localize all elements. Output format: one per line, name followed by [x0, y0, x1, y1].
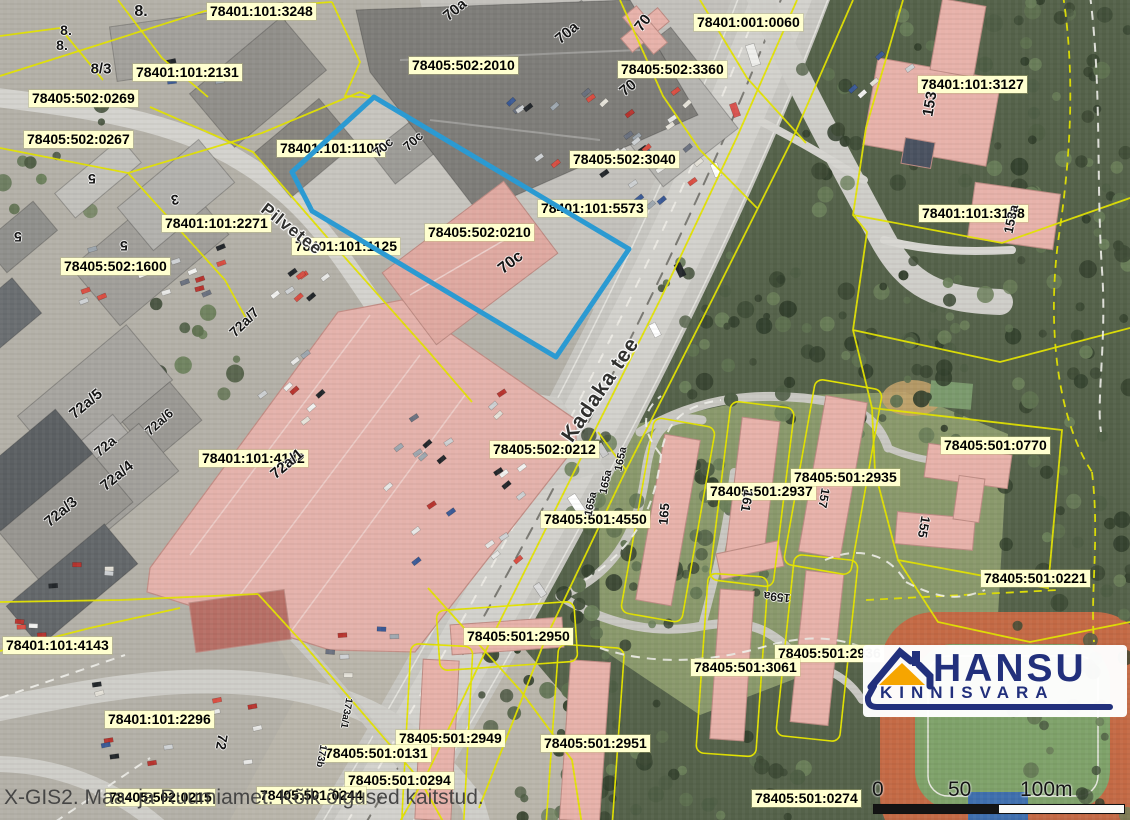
parcel-label: 78401:101:3127	[918, 76, 1027, 93]
parcel-label: 78405:501:2951	[541, 735, 650, 752]
building-number-label: 3	[170, 191, 180, 208]
parcel-label: 78401:101:2296	[105, 711, 214, 728]
logo-subtitle: KINNISVARA	[880, 683, 1055, 703]
scale-bar-graphic	[873, 804, 1125, 814]
attribution-text: X-GIS2. Maa- ja Ruumiamet. Kõik õigused …	[4, 786, 484, 810]
building-number-label: 70a	[552, 18, 582, 47]
scale-tick-0: 0	[872, 778, 884, 802]
parcel-label: 78405:501:3061	[691, 659, 800, 676]
building-number-label: 72a/6	[142, 406, 176, 439]
building-number-label: 72	[213, 733, 231, 751]
building-number-label: 70	[631, 11, 655, 35]
parcel-label: 78401:001:0060	[694, 14, 803, 31]
scale-bar: 0 50 100m	[860, 778, 1128, 818]
building-number-label: 159a	[763, 589, 791, 606]
building-number-label: 72a/7	[226, 304, 262, 340]
parcel-label: 78401:101:4143	[3, 637, 112, 654]
building-number-label: 8.	[56, 37, 68, 53]
scale-bar-segment-dark	[874, 805, 999, 813]
parcel-label: 78405:502:1600	[61, 258, 170, 275]
building-number-label: 8.	[134, 3, 147, 21]
street-name-label: Kadaka tee	[557, 333, 645, 447]
parcel-label: 78405:501:0274	[752, 790, 861, 807]
building-number-label: 5	[14, 229, 22, 245]
parcel-label: 78401:101:2271	[162, 215, 271, 232]
parcel-label: 78405:502:0267	[24, 131, 133, 148]
building-number-label: 173b	[314, 744, 329, 768]
parcel-label: 78405:502:3360	[618, 61, 727, 78]
parcel-label: 78405:501:0131	[322, 745, 431, 762]
building-number-label: 72a	[91, 432, 119, 459]
parcel-label: 78401:101:2131	[133, 64, 242, 81]
building-number-label: 165a	[613, 446, 630, 472]
parcel-label: 78405:502:0212	[490, 441, 599, 458]
parcel-label: 78405:501:4550	[541, 511, 650, 528]
building-number-label: 70a	[440, 0, 470, 25]
building-number-label: 5	[120, 238, 128, 254]
parcel-label: 78405:501:0221	[981, 570, 1090, 587]
building-number-label: 161	[738, 489, 757, 513]
scale-tick-50: 50	[948, 778, 971, 802]
scale-tick-100: 100m	[1020, 778, 1073, 802]
building-number-label: 8/3	[91, 61, 112, 78]
parcel-label: 78405:501:2935	[791, 469, 900, 486]
building-number-label: 72a/3	[41, 493, 81, 530]
building-number-label: 70	[616, 76, 640, 100]
parcel-label: 78405:502:3040	[570, 151, 679, 168]
building-number-label: 165a	[598, 469, 615, 495]
building-number-label: 153	[919, 90, 940, 118]
parcel-label: 78405:501:2950	[464, 628, 573, 645]
building-number-label: 5	[88, 171, 96, 187]
parcel-label: 78405:502:2010	[409, 57, 518, 74]
building-number-label: 173a/1	[338, 697, 354, 729]
parcel-label: 78405:502:0269	[29, 90, 138, 107]
building-number-label: 8.	[60, 22, 72, 38]
scale-bar-segment-light	[999, 805, 1124, 813]
building-number-label: 157	[815, 487, 832, 509]
building-number-label: 72a/5	[66, 385, 106, 422]
parcel-label: 78405:501:0770	[941, 437, 1050, 454]
hansu-logo: HANSU KINNISVARA	[863, 645, 1127, 717]
parcel-label: 78401:101:3248	[207, 3, 316, 20]
building-number-label: 165	[656, 503, 673, 526]
map-viewport[interactable]: 78401:101:324878401:001:006078405:502:20…	[0, 0, 1130, 820]
building-number-label: 155	[915, 515, 934, 539]
building-number-label: 72a/4	[97, 457, 137, 494]
